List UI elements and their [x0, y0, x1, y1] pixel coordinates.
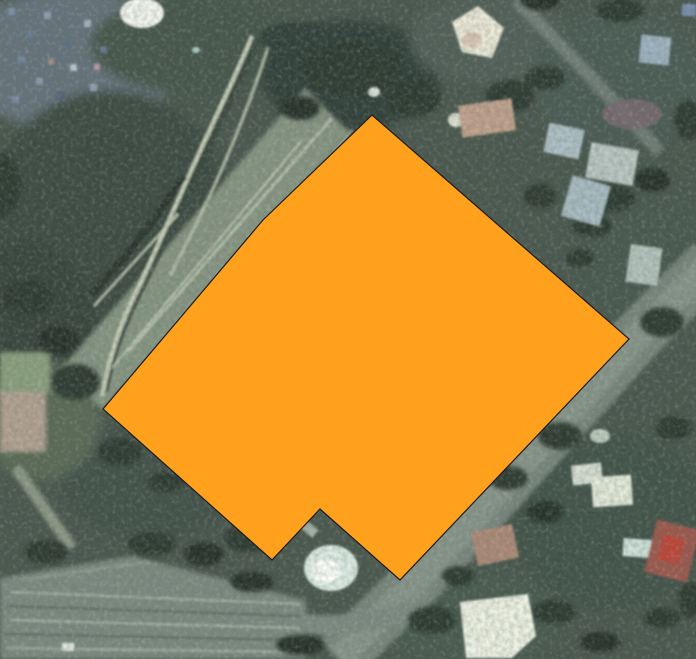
- map-viewport[interactable]: [0, 0, 696, 659]
- aerial-imagery-canvas: [0, 0, 696, 659]
